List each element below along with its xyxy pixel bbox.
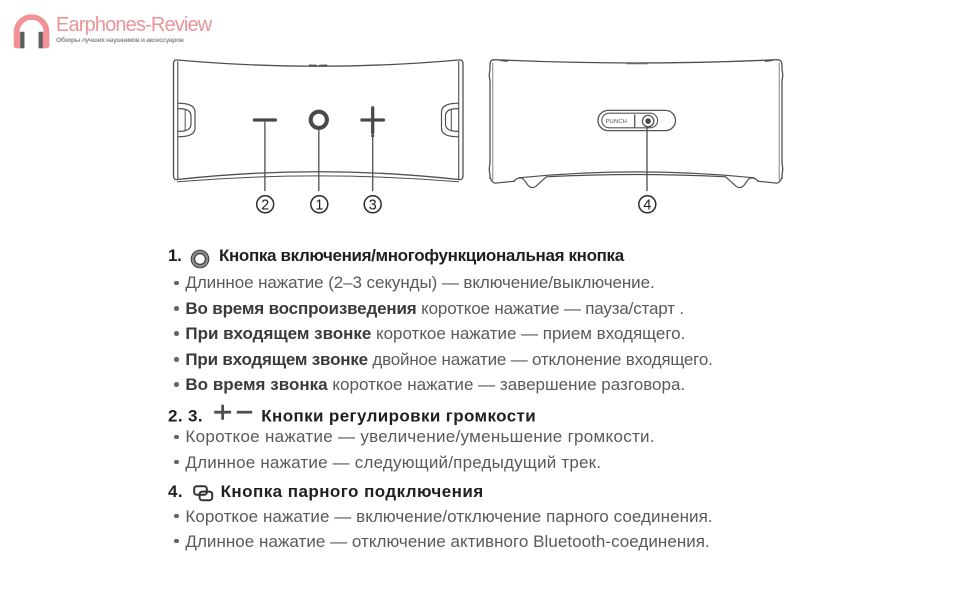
svg-text:1: 1 bbox=[315, 198, 323, 214]
svg-text:PUNCH: PUNCH bbox=[606, 119, 627, 125]
svg-text:2: 2 bbox=[261, 198, 269, 214]
svg-text:3: 3 bbox=[369, 198, 377, 214]
svg-text:4: 4 bbox=[643, 198, 651, 214]
